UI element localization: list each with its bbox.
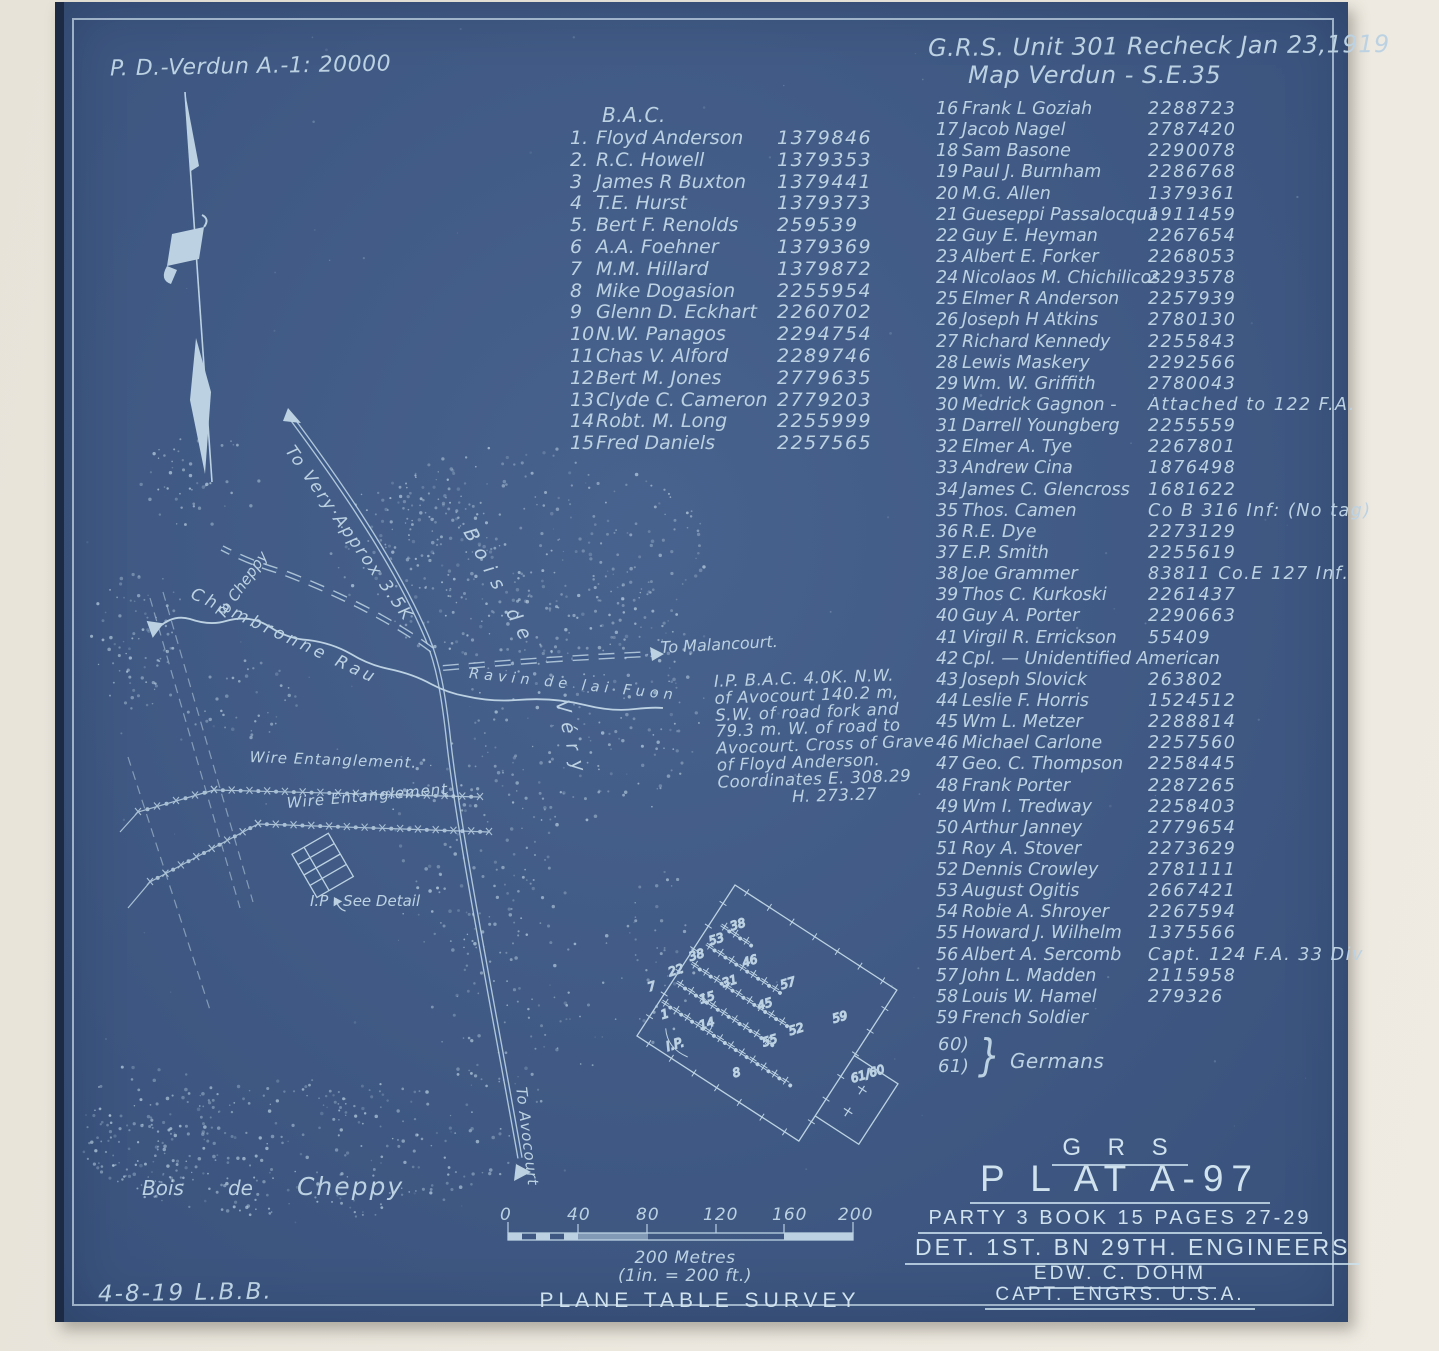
scale-tick-40: 40 — [567, 1205, 591, 1225]
soldier-serial: Attached to 122 F.A. — [1148, 395, 1372, 416]
soldier-name: 20M.G. Allen — [936, 184, 1148, 205]
soldier-name: 13Clyde C. Cameron — [570, 389, 777, 411]
soldier-name: 39Thos C. Kurkoski — [936, 585, 1148, 606]
soldier-serial: 2780130 — [1148, 310, 1372, 331]
soldier-serial: 2781111 — [1148, 860, 1372, 881]
roster-row: 25Elmer R Anderson 2257939 — [936, 289, 1372, 310]
roster-row: 36R.E. Dye 2273129 — [936, 522, 1372, 543]
roster-row: 34James C. Glencross 1681622 — [936, 480, 1372, 501]
soldier-serial: 2779203 — [777, 389, 872, 411]
roster-row: 46Michael Carlone 2257560 — [936, 733, 1372, 754]
roster-row: 6A.A. Foehner 1379369 — [570, 236, 872, 258]
roster-row: 17Jacob Nagel 2787420 — [936, 120, 1372, 141]
soldier-serial: 2273129 — [1148, 522, 1372, 543]
soldier-name: 4T.E. Hurst — [570, 192, 777, 214]
roster-row: 44Leslie F. Horris 1524512 — [936, 691, 1372, 712]
soldier-name: 6A.A. Foehner — [570, 236, 777, 258]
soldier-serial: 55409 — [1148, 628, 1372, 649]
roster-row: 3James R Buxton 1379441 — [570, 171, 872, 193]
soldier-name: 56Albert A. Sercomb — [936, 945, 1148, 966]
roster-row: 58Louis W. Hamel 279326 — [936, 987, 1372, 1008]
ip-see-detail-label: I.P - See Detail — [310, 892, 420, 910]
roster-row: 53August Ogitis 2667421 — [936, 881, 1372, 902]
soldier-serial: 1379441 — [777, 171, 872, 193]
roster-row: 55Howard J. Wilhelm 1375566 — [936, 923, 1372, 944]
soldier-serial: 2273629 — [1148, 839, 1372, 860]
unit-recheck-title: G.R.S. Unit 301 Recheck Jan 23,1919 — [928, 30, 1390, 62]
soldier-serial: 1876498 — [1148, 458, 1372, 479]
soldier-name: 27Richard Kennedy — [936, 332, 1148, 353]
soldier-name: 25Elmer R Anderson — [936, 289, 1148, 310]
label-word: Bois — [142, 1176, 184, 1200]
soldier-serial: 1524512 — [1148, 691, 1372, 712]
roster-row: 32Elmer A. Tye 2267801 — [936, 437, 1372, 458]
soldier-name: 48Frank Porter — [936, 776, 1148, 797]
soldier-serial: 2780043 — [1148, 374, 1372, 395]
soldier-serial: 2258403 — [1148, 797, 1372, 818]
roster-row: 15Fred Daniels 2257565 — [570, 432, 872, 454]
soldier-serial: Co B 316 Inf: (No tag) — [1148, 501, 1372, 522]
soldier-name: 28Lewis Maskery — [936, 353, 1148, 374]
scale-tick-200: 200 — [838, 1205, 873, 1225]
soldier-name: 18Sam Basone — [936, 141, 1148, 162]
soldier-serial: 2667421 — [1148, 881, 1372, 902]
soldier-serial: 2288814 — [1148, 712, 1372, 733]
roster-row: 14Robt. M. Long 2255999 — [570, 410, 872, 432]
roster-row: 42Cpl. — Unidentified American — [936, 649, 1372, 670]
soldier-serial: 2257939 — [1148, 289, 1372, 310]
roster-row: 54Robie A. Shroyer 2267594 — [936, 902, 1372, 923]
soldier-name: 9Glenn D. Eckhart — [570, 301, 777, 323]
roster-row: 18Sam Basone 2290078 — [936, 141, 1372, 162]
german-grave-number: 60) — [938, 1034, 969, 1056]
soldier-name: 42Cpl. — Unidentified American — [936, 649, 1148, 670]
soldier-name: 38Joe Grammer — [936, 564, 1148, 585]
bac-list-title: B.A.C. — [602, 103, 666, 127]
soldier-serial: 259539 — [777, 214, 872, 236]
roster-row: 24Nicolaos M. Chichilicos 2293578 — [936, 268, 1372, 289]
soldier-serial: 83811 Co.E 127 Inf. — [1148, 564, 1372, 585]
soldier-serial: 2257560 — [1148, 733, 1372, 754]
soldier-name: 53August Ogitis — [936, 881, 1148, 902]
soldier-name: 33Andrew Cina — [936, 458, 1148, 479]
soldier-name: 45Wm L. Metzer — [936, 712, 1148, 733]
brace-glyph: } — [978, 1030, 1001, 1081]
roster-row: 45Wm L. Metzer 2288814 — [936, 712, 1372, 733]
soldier-name: 57John L. Madden — [936, 966, 1148, 987]
soldier-serial: 2260702 — [777, 301, 872, 323]
soldier-name: 43Joseph Slovick — [936, 670, 1148, 691]
roster-row: 31Darrell Youngberg 2255559 — [936, 416, 1372, 437]
soldier-name: 50Arthur Janney — [936, 818, 1148, 839]
map-reference-note: P. D.-Verdun A.-1: 20000 — [110, 52, 392, 82]
soldier-name: 36R.E. Dye — [936, 522, 1148, 543]
soldier-serial: 2255843 — [1148, 332, 1372, 353]
roster-row: 23Albert E. Forker 2268053 — [936, 247, 1372, 268]
roster-row: 8Mike Dogasion 2255954 — [570, 280, 872, 302]
soldier-name: 47Geo. C. Thompson — [936, 754, 1148, 775]
roster-row: 13Clyde C. Cameron 2779203 — [570, 389, 872, 411]
soldier-name: 7M.M. Hillard — [570, 258, 777, 280]
title-block-detachment: DET. 1ST. BN 29TH. ENGINEERS — [905, 1234, 1315, 1265]
roster-row: 51Roy A. Stover 2273629 — [936, 839, 1372, 860]
roster-row: 19Paul J. Burnham 2286768 — [936, 162, 1372, 183]
scale-tick-80: 80 — [636, 1205, 660, 1225]
soldier-name: 58Louis W. Hamel — [936, 987, 1148, 1008]
roster-row: 47Geo. C. Thompson 2258445 — [936, 754, 1372, 775]
soldier-serial: 1379361 — [1148, 184, 1372, 205]
soldier-serial: 2293578 — [1148, 268, 1372, 289]
soldier-name: 34James C. Glencross — [936, 480, 1148, 501]
soldier-serial: 2779635 — [777, 367, 872, 389]
soldier-name: 11Chas V. Alford — [570, 345, 777, 367]
soldier-name: 30Medrick Gagnon - — [936, 395, 1148, 416]
soldier-name: 40Guy A. Porter — [936, 606, 1148, 627]
soldier-serial: 1379872 — [777, 258, 872, 280]
soldier-serial: 1379369 — [777, 236, 872, 258]
title-block-party-book: PARTY 3 BOOK 15 PAGES 27-29 — [915, 1207, 1325, 1234]
soldier-name: 15Fred Daniels — [570, 432, 777, 454]
soldier-serial: Capt. 124 F.A. 33 Div — [1148, 945, 1372, 966]
roster-row: 40Guy A. Porter 2290663 — [936, 606, 1372, 627]
soldier-name: 3James R Buxton — [570, 171, 777, 193]
soldier-name: 5.Bert F. Renolds — [570, 214, 777, 236]
grave-roster-right: 16Frank L Goziah 2288723 17Jacob Nagel 2… — [936, 99, 1372, 1029]
soldier-name: 37E.P. Smith — [936, 543, 1148, 564]
soldier-name: 8Mike Dogasion — [570, 280, 777, 302]
soldier-serial: 2287265 — [1148, 776, 1372, 797]
soldier-serial: 2261437 — [1148, 585, 1372, 606]
date-initials-note: 4-8-19 L.B.B. — [98, 1278, 273, 1307]
roster-row: 52Dennis Crowley 2781111 — [936, 860, 1372, 881]
roster-row: 22Guy E. Heyman 2267654 — [936, 226, 1372, 247]
scale-tick-120: 120 — [703, 1205, 738, 1225]
label-word: de — [228, 1176, 253, 1200]
roster-row: 12Bert M. Jones 2779635 — [570, 367, 872, 389]
soldier-name: 12Bert M. Jones — [570, 367, 777, 389]
soldier-name: 17Jacob Nagel — [936, 120, 1148, 141]
soldier-serial: 2255954 — [777, 280, 872, 302]
roster-row: 50Arthur Janney 2779654 — [936, 818, 1372, 839]
germans-group: 60) 61) } Germans — [938, 1030, 1104, 1081]
roster-row: 43Joseph Slovick 263802 — [936, 670, 1372, 691]
roster-row: 49Wm I. Tredway 2258403 — [936, 797, 1372, 818]
soldier-serial: 2268053 — [1148, 247, 1372, 268]
roster-row: 33Andrew Cina 1876498 — [936, 458, 1372, 479]
soldier-serial — [1148, 649, 1372, 670]
soldier-serial: 2257565 — [777, 432, 872, 454]
survey-type-caption: PLANE TABLE SURVEY — [535, 1289, 865, 1313]
soldier-serial: 1911459 — [1148, 205, 1372, 226]
soldier-name: 41Virgil R. Errickson — [936, 628, 1148, 649]
soldier-name: 31Darrell Youngberg — [936, 416, 1148, 437]
soldier-name: 26Joseph H Atkins — [936, 310, 1148, 331]
soldier-name: 32Elmer A. Tye — [936, 437, 1148, 458]
roster-row: 16Frank L Goziah 2288723 — [936, 99, 1372, 120]
scale-tick-0: 0 — [500, 1205, 512, 1225]
roster-row: 57John L. Madden 2115958 — [936, 966, 1372, 987]
label-word: Cheppy — [297, 1172, 404, 1201]
soldier-name: 54Robie A. Shroyer — [936, 902, 1148, 923]
soldier-name: 46Michael Carlone — [936, 733, 1148, 754]
soldier-serial: 2255619 — [1148, 543, 1372, 564]
roster-row: 2.R.C. Howell 1379353 — [570, 149, 872, 171]
scale-caption-metres: 200 Metres — [575, 1248, 795, 1268]
soldier-name: 35Thos. Camen — [936, 501, 1148, 522]
german-grave-number: 61) — [938, 1056, 969, 1078]
roster-row: 20M.G. Allen 1379361 — [936, 184, 1372, 205]
roster-row: 28Lewis Maskery 2292566 — [936, 353, 1372, 374]
soldier-name: 24Nicolaos M. Chichilicos — [936, 268, 1148, 289]
soldier-serial: 2115958 — [1148, 966, 1372, 987]
germans-label: Germans — [1010, 1049, 1104, 1073]
soldier-name: 23Albert E. Forker — [936, 247, 1148, 268]
soldier-name: 52Dennis Crowley — [936, 860, 1148, 881]
roster-row: 35Thos. Camen Co B 316 Inf: (No tag) — [936, 501, 1372, 522]
roster-row: 1.Floyd Anderson 1379846 — [570, 127, 872, 149]
soldier-serial: 1379353 — [777, 149, 872, 171]
soldier-name: 49Wm I. Tredway — [936, 797, 1148, 818]
scale-caption-ratio: (1in. = 200 ft.) — [575, 1266, 795, 1286]
soldier-serial: 2267801 — [1148, 437, 1372, 458]
soldier-serial: 263802 — [1148, 670, 1372, 691]
soldier-serial: 2255559 — [1148, 416, 1372, 437]
roster-row: 41Virgil R. Errickson 55409 — [936, 628, 1372, 649]
soldier-serial: 2787420 — [1148, 120, 1372, 141]
roster-row: 29Wm. W. Griffith 2780043 — [936, 374, 1372, 395]
soldier-name: 21Gueseppi Passalocqua — [936, 205, 1148, 226]
soldier-serial — [1148, 1008, 1372, 1029]
roster-row: 9Glenn D. Eckhart 2260702 — [570, 301, 872, 323]
forest-label-bois-de-cheppy: Bois de Cheppy — [142, 1172, 404, 1201]
soldier-name: 29Wm. W. Griffith — [936, 374, 1148, 395]
roster-row: 38Joe Grammer 83811 Co.E 127 Inf. — [936, 564, 1372, 585]
roster-row: 48Frank Porter 2287265 — [936, 776, 1372, 797]
soldier-serial: 2292566 — [1148, 353, 1372, 374]
soldier-name: 44Leslie F. Horris — [936, 691, 1148, 712]
soldier-serial: 2290078 — [1148, 141, 1372, 162]
soldier-serial: 2267594 — [1148, 902, 1372, 923]
roster-row: 59French Soldier — [936, 1008, 1372, 1029]
soldier-serial: 2267654 — [1148, 226, 1372, 247]
roster-row: 5.Bert F. Renolds 259539 — [570, 214, 872, 236]
title-block-rank: CAPT. ENGRS. U.S.A. — [915, 1284, 1325, 1310]
bac-roster: 1.Floyd Anderson 1379846 2.R.C. Howell 1… — [570, 127, 872, 454]
roster-row: 21Gueseppi Passalocqua 1911459 — [936, 205, 1372, 226]
soldier-serial: 2289746 — [777, 345, 872, 367]
soldier-name: 22Guy E. Heyman — [936, 226, 1148, 247]
roster-row: 11Chas V. Alford 2289746 — [570, 345, 872, 367]
soldier-name: 10N.W. Panagos — [570, 323, 777, 345]
soldier-serial: 2294754 — [777, 323, 872, 345]
soldier-serial: 2779654 — [1148, 818, 1372, 839]
map-verdun-subtitle: Map Verdun - S.E.35 — [968, 61, 1221, 89]
soldier-name: 51Roy A. Stover — [936, 839, 1148, 860]
scale-tick-160: 160 — [772, 1205, 807, 1225]
roster-row: 39Thos C. Kurkoski 2261437 — [936, 585, 1372, 606]
soldier-serial: 279326 — [1148, 987, 1372, 1008]
soldier-serial: 2288723 — [1148, 99, 1372, 120]
soldier-name: 1.Floyd Anderson — [570, 127, 777, 149]
soldier-serial: 2290663 — [1148, 606, 1372, 627]
soldier-name: 19Paul J. Burnham — [936, 162, 1148, 183]
soldier-name: 55Howard J. Wilhelm — [936, 923, 1148, 944]
roster-row: 26Joseph H Atkins 2780130 — [936, 310, 1372, 331]
soldier-name: 2.R.C. Howell — [570, 149, 777, 171]
soldier-serial: 2258445 — [1148, 754, 1372, 775]
roster-row: 56Albert A. Sercomb Capt. 124 F.A. 33 Di… — [936, 945, 1372, 966]
roster-row: 37E.P. Smith 2255619 — [936, 543, 1372, 564]
soldier-name: 14Robt. M. Long — [570, 410, 777, 432]
soldier-serial: 1375566 — [1148, 923, 1372, 944]
roster-row: 4T.E. Hurst 1379373 — [570, 192, 872, 214]
soldier-serial: 1379846 — [777, 127, 872, 149]
roster-row: 27Richard Kennedy 2255843 — [936, 332, 1372, 353]
roster-row: 7M.M. Hillard 1379872 — [570, 258, 872, 280]
roster-row: 10N.W. Panagos 2294754 — [570, 323, 872, 345]
soldier-name: 16Frank L Goziah — [936, 99, 1148, 120]
roster-row: 30Medrick Gagnon - Attached to 122 F.A. — [936, 395, 1372, 416]
soldier-serial: 2255999 — [777, 410, 872, 432]
soldier-name: 59French Soldier — [936, 1008, 1148, 1029]
ip-location-note: I.P. B.A.C. 4.0K. N.W. of Avocourt 140.2… — [714, 666, 937, 808]
title-block-plat: P L AT A-97 — [915, 1158, 1325, 1204]
soldier-serial: 1681622 — [1148, 480, 1372, 501]
soldier-serial: 2286768 — [1148, 162, 1372, 183]
soldier-serial: 1379373 — [777, 192, 872, 214]
